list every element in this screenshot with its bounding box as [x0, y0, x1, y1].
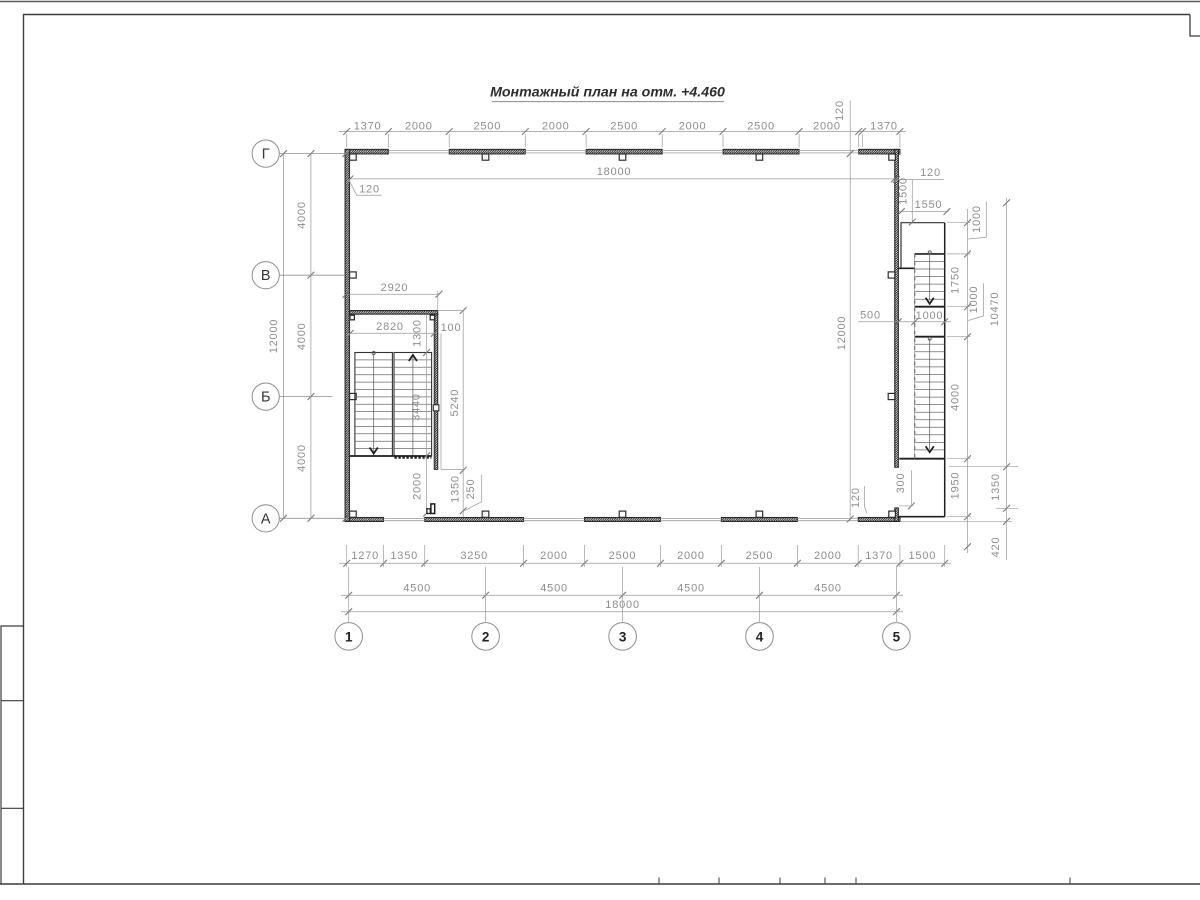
svg-text:1750: 1750	[949, 266, 961, 294]
svg-text:120: 120	[359, 183, 380, 195]
svg-text:2000: 2000	[813, 120, 841, 132]
svg-text:1950: 1950	[949, 472, 961, 500]
svg-text:1350: 1350	[990, 473, 1002, 501]
svg-text:5: 5	[893, 629, 901, 644]
svg-text:Б: Б	[261, 390, 271, 406]
svg-text:420: 420	[990, 537, 1002, 558]
svg-text:2500: 2500	[747, 120, 775, 132]
svg-text:4500: 4500	[814, 582, 842, 594]
svg-text:1000: 1000	[971, 205, 983, 233]
svg-text:4000: 4000	[296, 444, 308, 472]
svg-text:2000: 2000	[814, 550, 842, 562]
svg-text:2: 2	[482, 629, 490, 644]
svg-text:2000: 2000	[542, 120, 570, 132]
svg-text:12000: 12000	[268, 319, 280, 354]
svg-text:1370: 1370	[870, 120, 898, 132]
svg-text:4000: 4000	[949, 383, 961, 411]
svg-text:1270: 1270	[351, 550, 379, 562]
svg-text:250: 250	[465, 479, 477, 500]
svg-text:2000: 2000	[540, 550, 568, 562]
svg-text:1000: 1000	[968, 286, 980, 314]
svg-text:1: 1	[345, 629, 353, 644]
svg-text:Г: Г	[262, 147, 270, 163]
svg-text:2500: 2500	[473, 120, 501, 132]
svg-text:120: 120	[850, 487, 862, 508]
svg-text:10470: 10470	[989, 292, 1001, 327]
svg-text:4000: 4000	[296, 201, 308, 229]
svg-text:1350: 1350	[449, 475, 461, 503]
svg-text:2500: 2500	[746, 550, 774, 562]
svg-text:2000: 2000	[679, 120, 707, 132]
svg-text:1550: 1550	[915, 199, 943, 211]
svg-text:100: 100	[441, 322, 462, 334]
svg-text:А: А	[261, 511, 271, 527]
svg-text:2000: 2000	[405, 120, 433, 132]
svg-text:500: 500	[860, 309, 881, 321]
svg-text:2000: 2000	[411, 472, 423, 500]
svg-text:1300: 1300	[411, 319, 423, 347]
svg-text:12000: 12000	[836, 316, 848, 351]
svg-text:2820: 2820	[376, 321, 404, 333]
svg-text:1500: 1500	[898, 177, 910, 205]
svg-text:5240: 5240	[449, 389, 461, 417]
svg-text:2000: 2000	[677, 550, 705, 562]
svg-text:1350: 1350	[390, 550, 418, 562]
svg-text:18000: 18000	[597, 166, 632, 178]
svg-text:4500: 4500	[540, 582, 568, 594]
svg-text:1370: 1370	[354, 120, 382, 132]
svg-text:120: 120	[834, 100, 846, 121]
svg-text:3: 3	[619, 629, 627, 644]
svg-text:3250: 3250	[460, 550, 488, 562]
svg-text:1000: 1000	[916, 310, 944, 322]
svg-text:4000: 4000	[296, 322, 308, 350]
svg-text:120: 120	[920, 167, 941, 179]
svg-text:2920: 2920	[381, 282, 409, 294]
svg-text:4500: 4500	[403, 582, 431, 594]
svg-text:В: В	[261, 268, 271, 284]
svg-text:4500: 4500	[677, 582, 705, 594]
svg-text:300: 300	[895, 473, 907, 494]
svg-text:3440: 3440	[411, 393, 423, 421]
svg-text:2500: 2500	[609, 550, 637, 562]
svg-text:1370: 1370	[865, 550, 893, 562]
svg-text:2500: 2500	[610, 120, 638, 132]
svg-text:1500: 1500	[908, 550, 936, 562]
svg-text:4: 4	[756, 629, 764, 644]
svg-text:Монтажный план на отм. +4.460: Монтажный план на отм. +4.460	[490, 85, 725, 101]
